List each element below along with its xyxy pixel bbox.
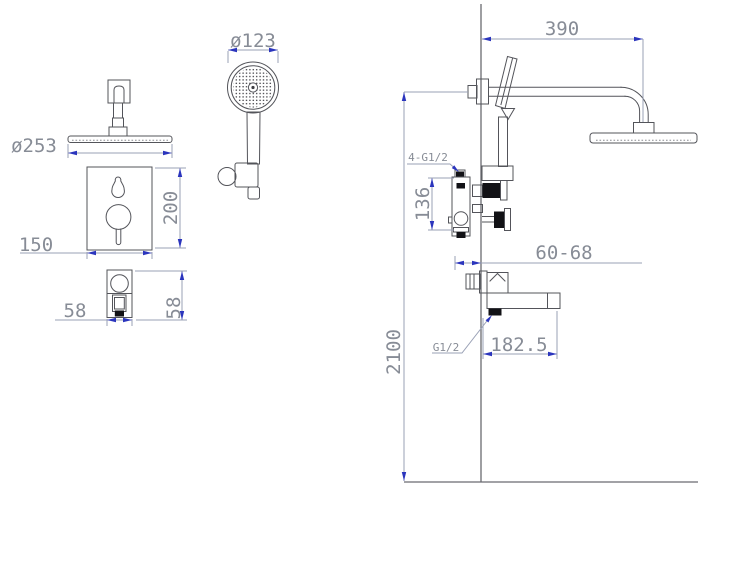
arrow-right — [548, 352, 557, 356]
leader-line — [407, 164, 458, 171]
arrow-bottom — [430, 221, 434, 230]
hand-shower-front-view — [218, 62, 279, 199]
arrow-right — [123, 318, 132, 322]
dim-line — [68, 144, 172, 158]
drawing-canvas: ø253 ø123 150 200 — [0, 0, 741, 577]
arrow-right — [472, 261, 481, 265]
dim-embed-depth: 60-68 — [455, 242, 642, 270]
lever-knob-cap — [505, 209, 511, 231]
arrow-left — [482, 37, 491, 41]
spout-neck-inner — [115, 298, 125, 310]
valve-top-port-cap — [456, 172, 464, 177]
dim-line — [482, 39, 643, 122]
label-4-g12: 4-G1/2 — [408, 151, 448, 164]
mixer-lever-stem — [116, 229, 121, 245]
mixer-panel-front-view — [87, 167, 152, 250]
dim-valve-span: 136 — [412, 178, 454, 230]
arrow-top — [402, 92, 406, 101]
holder-knob — [218, 168, 236, 186]
dim-label-150: 150 — [19, 234, 53, 256]
rain-shower-front-view — [68, 80, 172, 143]
arrow-right — [143, 251, 152, 255]
dim-label-200: 200 — [160, 191, 182, 225]
holder-base — [482, 166, 513, 181]
arrow-top — [430, 178, 434, 187]
hand-shower-handle — [247, 112, 260, 164]
dim-label-2100: 2100 — [383, 329, 405, 375]
spout-end-view — [107, 270, 132, 318]
diverter-knob — [112, 177, 125, 197]
arm-wall-nut — [468, 86, 477, 99]
mixer-panel-plate — [87, 167, 152, 250]
arrow-left — [107, 318, 116, 322]
dim-hand-shower-diameter: ø123 — [228, 30, 278, 63]
dim-label-58-v: 58 — [163, 297, 185, 320]
spout-body — [487, 273, 508, 294]
holder-bracket — [235, 163, 258, 187]
arrow-bottom — [178, 239, 182, 248]
dim-label-58-h: 58 — [64, 300, 87, 322]
spout-shower-port — [489, 309, 502, 316]
spout-end-circle — [111, 275, 129, 293]
dim-spout-height: 58 — [135, 271, 187, 320]
dim-spout-length: 182.5 — [483, 311, 557, 359]
diverter-knob-side — [483, 183, 501, 198]
dim-label-253: ø253 — [11, 135, 57, 157]
dim-panel-width: 150 — [19, 234, 152, 259]
face-center-dot — [251, 86, 254, 89]
handle-tail — [248, 187, 260, 199]
spout-port-black — [115, 311, 124, 317]
arrow-top — [178, 168, 182, 177]
hand-shower-handle-side — [499, 117, 508, 167]
lever-shaft — [483, 217, 495, 223]
valve-port-black — [457, 183, 466, 189]
valve-bottom-ring — [454, 228, 469, 233]
spout-fitting-ribs — [470, 274, 474, 289]
arm-bend — [114, 86, 124, 103]
arm-escutcheon — [108, 80, 130, 103]
arm-flange — [477, 79, 489, 104]
mixer-lever-head — [106, 205, 131, 230]
valve-bottom-cap — [457, 232, 466, 238]
dim-label-390: 390 — [545, 18, 579, 40]
spout-tube — [487, 293, 560, 309]
arrow-bottom — [402, 472, 406, 481]
arrow-right — [634, 37, 643, 41]
dim-arm-length: 390 — [482, 18, 643, 122]
hand-shower-head-line — [501, 59, 513, 105]
spout-body-chevron — [490, 274, 505, 282]
valve-left-nub — [449, 217, 453, 223]
diverter-knob-cap — [501, 181, 508, 201]
arrow-left — [68, 151, 77, 155]
head-connector — [634, 123, 655, 134]
dim-panel-height: 200 — [155, 168, 186, 248]
label-g12: G1/2 — [433, 341, 460, 354]
dim-label-182-5: 182.5 — [490, 334, 547, 356]
dim-label-136: 136 — [412, 187, 434, 221]
rain-head-side — [590, 133, 697, 143]
arm-elbow — [621, 87, 648, 122]
head-hub — [109, 127, 127, 136]
arrow-left — [87, 251, 96, 255]
dim-label-123: ø123 — [230, 30, 276, 52]
label-inlet-ports: 4-G1/2 — [407, 151, 459, 172]
arrow-right — [163, 151, 172, 155]
arrow-top — [180, 271, 184, 280]
spout-wall-fitting — [466, 274, 480, 289]
dim-label-60-68: 60-68 — [535, 242, 592, 264]
lever-knob-side — [494, 212, 505, 229]
arm-collar — [113, 118, 124, 127]
dim-rain-shower-diameter: ø253 — [11, 135, 172, 158]
valve-cartridge-circle — [454, 212, 468, 226]
arm-drop — [114, 103, 123, 118]
rain-head-disc — [68, 136, 172, 143]
arrow-left — [455, 261, 464, 265]
shower-system-drawing: ø253 ø123 150 200 — [0, 0, 741, 577]
